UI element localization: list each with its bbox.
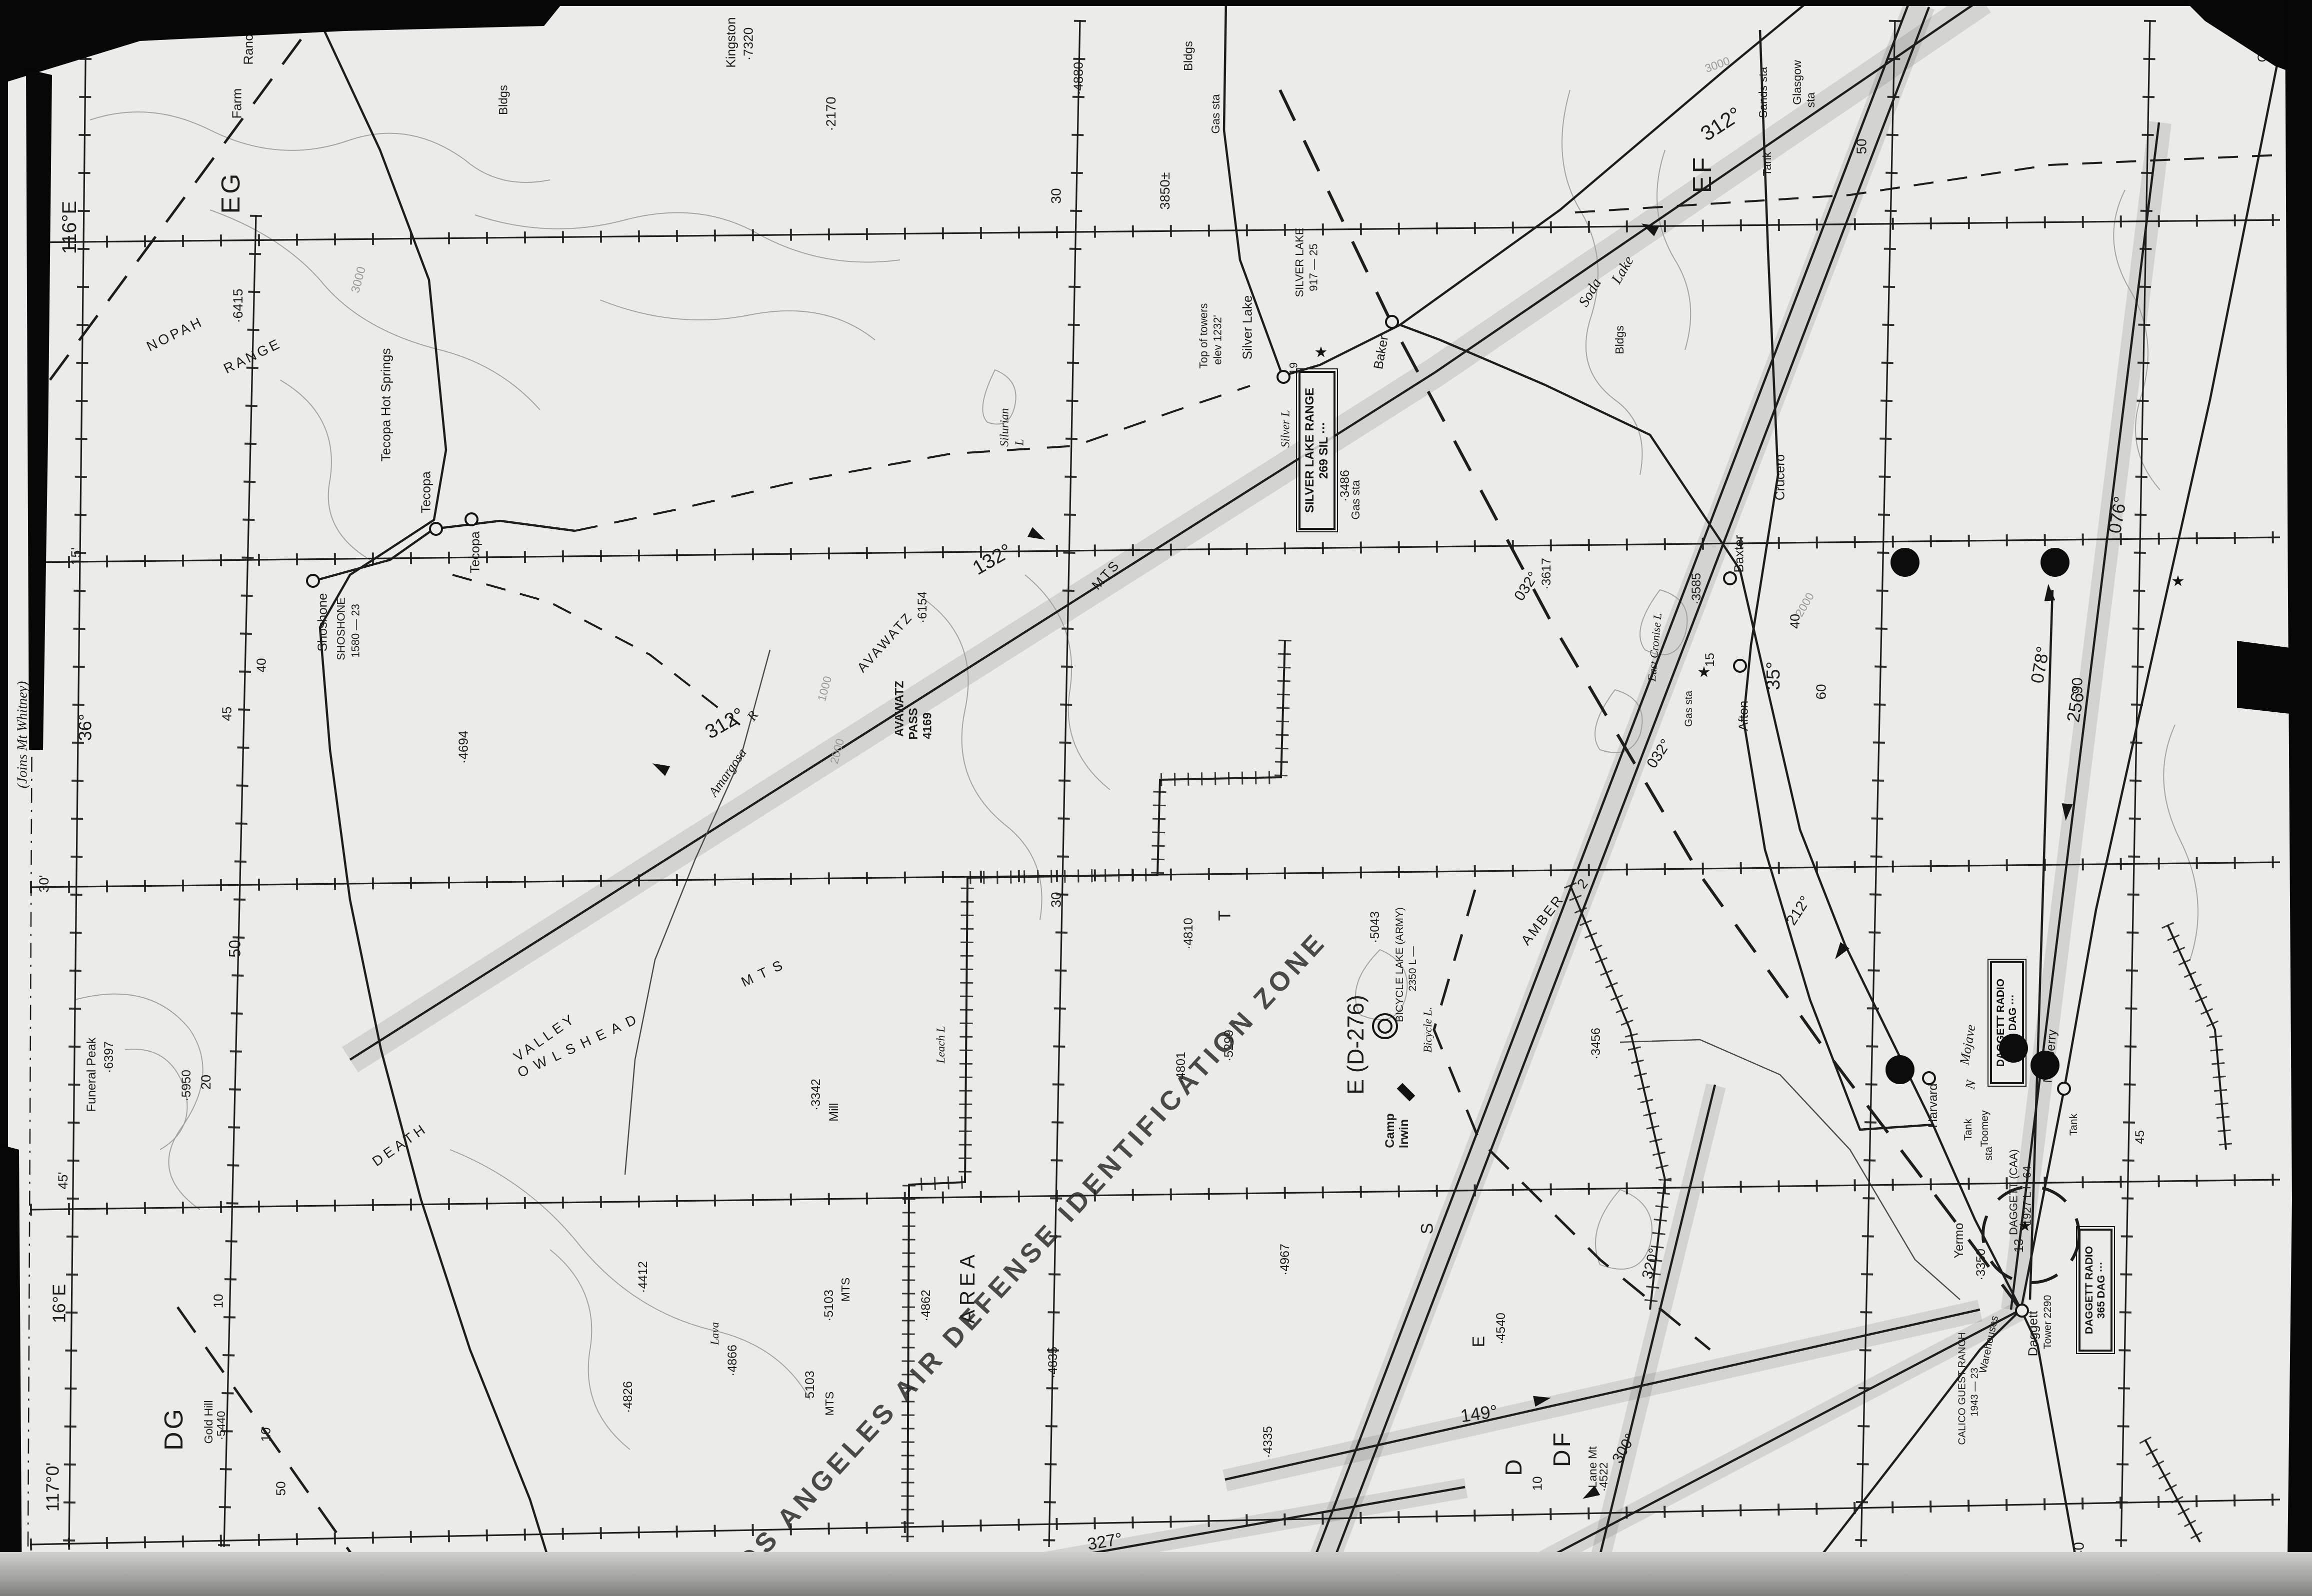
map-canvas: RanchFarmKingston·7320BldgsBldgs·4880385… bbox=[0, 0, 2312, 1596]
scan-edge bbox=[2237, 641, 2290, 714]
scan-edge bbox=[26, 69, 52, 750]
scan-edge bbox=[2285, 0, 2312, 1596]
scan-bottom-shadow bbox=[0, 1552, 2312, 1596]
scan-artifacts-layer bbox=[0, 0, 2312, 1596]
scan-edge bbox=[0, 1145, 22, 1596]
scan-edge bbox=[0, 0, 2312, 6]
scan-edge bbox=[0, 0, 565, 84]
